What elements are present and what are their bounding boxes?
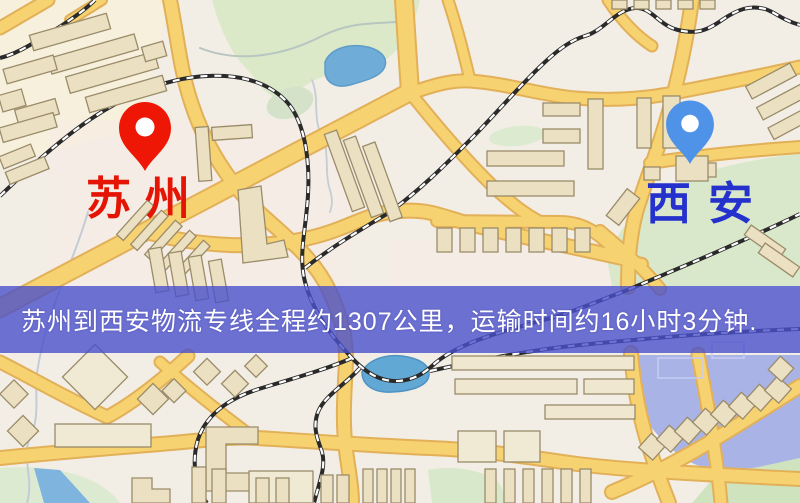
origin-pin [119,102,171,171]
map-screenshot: 苏州到西安物流专线全程约1307公里，运输时间约16小时3分钟. 苏州 西安 [0,0,800,503]
destination-pin [666,101,714,164]
destination-pin-hole [681,115,698,132]
markers-layer [0,0,800,503]
destination-city-label: 西安 [646,181,770,226]
origin-city-label: 苏州 [86,176,204,221]
origin-pin-hole [136,118,155,137]
